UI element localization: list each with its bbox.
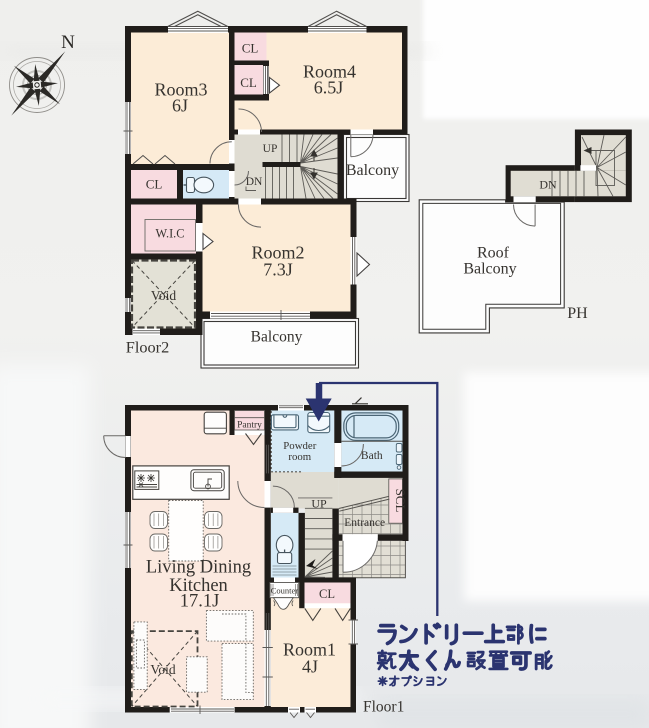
svg-text:PH: PH: [567, 305, 588, 322]
svg-text:6.5J: 6.5J: [314, 78, 344, 98]
svg-text:Counter: Counter: [271, 586, 299, 596]
svg-text:Void: Void: [151, 288, 177, 303]
svg-text:UP: UP: [263, 143, 278, 155]
svg-text:Pantry: Pantry: [237, 420, 262, 430]
svg-text:Balcony: Balcony: [463, 261, 516, 278]
svg-text:CL: CL: [242, 41, 259, 56]
svg-text:CL: CL: [146, 177, 163, 192]
svg-text:Entrance: Entrance: [344, 517, 385, 529]
svg-text:CL: CL: [319, 587, 335, 601]
svg-text:Roof: Roof: [477, 245, 510, 262]
svg-text:Bath: Bath: [361, 450, 383, 462]
svg-text:6J: 6J: [172, 96, 188, 116]
svg-text:UP: UP: [311, 496, 327, 510]
svg-text:17.1J: 17.1J: [180, 592, 220, 612]
svg-text:DN: DN: [246, 176, 263, 188]
svg-text:4J: 4J: [302, 657, 318, 677]
svg-text:N: N: [61, 32, 75, 53]
svg-text:7.3J: 7.3J: [263, 260, 293, 280]
svg-text:room: room: [288, 451, 311, 463]
svg-text:DN: DN: [539, 178, 557, 192]
svg-text:Void: Void: [150, 662, 176, 677]
svg-text:CL: CL: [240, 75, 257, 90]
svg-text:Living Dining: Living Dining: [146, 558, 251, 578]
svg-text:Floor2: Floor2: [126, 338, 169, 357]
svg-text:Balcony: Balcony: [346, 162, 399, 179]
svg-text:SCL: SCL: [393, 489, 408, 513]
svg-text:Balcony: Balcony: [251, 329, 303, 346]
svg-text:Floor1: Floor1: [363, 699, 404, 716]
svg-text:W.I.C: W.I.C: [156, 227, 185, 241]
